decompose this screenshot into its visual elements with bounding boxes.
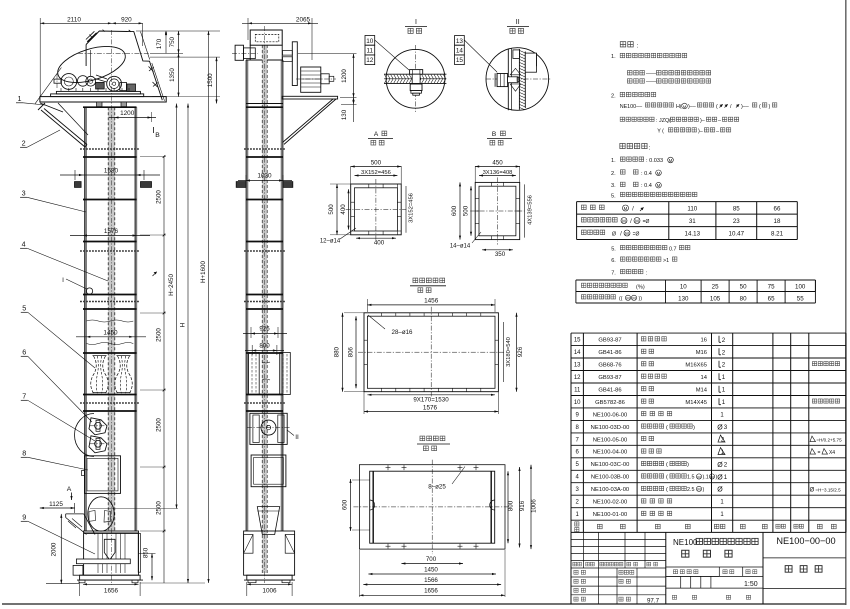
svg-text:1500: 1500 <box>207 73 214 87</box>
svg-text:GB68-76: GB68-76 <box>598 362 621 368</box>
svg-text:(: ( <box>666 425 668 431</box>
svg-text:15: 15 <box>456 57 464 64</box>
svg-text:926: 926 <box>259 326 270 333</box>
svg-text:14: 14 <box>456 48 464 55</box>
svg-text:M: M <box>624 206 628 211</box>
svg-text:GB41-86: GB41-86 <box>598 350 621 356</box>
svg-text:65: 65 <box>768 295 775 302</box>
svg-text:>1: >1 <box>663 258 669 264</box>
svg-text:)): )) <box>639 296 643 302</box>
svg-text:I: I <box>415 19 417 26</box>
svg-text:14: 14 <box>701 375 708 381</box>
svg-text:)–: )– <box>698 129 703 135</box>
svg-text:(: ( <box>716 104 718 110</box>
svg-text:12: 12 <box>574 375 581 381</box>
svg-text:16: 16 <box>701 338 707 344</box>
svg-text:H−2450: H−2450 <box>168 274 175 296</box>
svg-text:10: 10 <box>574 400 581 406</box>
svg-text:X4: X4 <box>829 450 835 456</box>
svg-text:H(: H( <box>676 104 682 110</box>
svg-text:12–ø14: 12–ø14 <box>320 239 341 245</box>
svg-text:(: ( <box>666 475 668 481</box>
svg-text:: 0.033: : 0.033 <box>646 158 663 164</box>
svg-text:800: 800 <box>259 343 270 350</box>
svg-text:M: M <box>632 296 635 301</box>
svg-text:5: 5 <box>22 304 26 313</box>
svg-text:1: 1 <box>722 387 726 394</box>
svg-text:100: 100 <box>795 284 806 291</box>
svg-text:H+1600: H+1600 <box>200 261 207 283</box>
svg-text:2110: 2110 <box>67 16 81 23</box>
svg-text:80: 80 <box>740 295 747 302</box>
svg-text:700: 700 <box>426 556 437 563</box>
svg-text:110: 110 <box>687 206 697 213</box>
svg-text:400: 400 <box>340 204 347 215</box>
svg-text:M16X65: M16X65 <box>685 362 707 368</box>
svg-text:Ø: Ø <box>717 474 723 481</box>
svg-text:50: 50 <box>740 284 747 291</box>
svg-text:14.13: 14.13 <box>685 231 701 238</box>
svg-text:14: 14 <box>574 350 581 356</box>
svg-text:1.: 1. <box>611 54 616 60</box>
svg-text:66: 66 <box>774 206 781 213</box>
svg-text:II: II <box>516 19 520 26</box>
svg-text:NE100-04-00: NE100-04-00 <box>593 450 627 456</box>
svg-text:1030: 1030 <box>257 173 272 180</box>
svg-text:10.47: 10.47 <box>729 231 745 238</box>
svg-text:4: 4 <box>22 240 26 249</box>
svg-text::: : <box>637 43 639 50</box>
svg-text:800: 800 <box>508 500 515 511</box>
svg-text:1450: 1450 <box>424 567 438 574</box>
svg-text:——: —— <box>646 71 656 77</box>
svg-text:1656: 1656 <box>104 587 119 594</box>
svg-text:10: 10 <box>680 284 687 291</box>
svg-text:13: 13 <box>456 38 464 45</box>
svg-text:NE100-03D-00: NE100-03D-00 <box>591 425 630 431</box>
svg-text:806: 806 <box>347 346 354 357</box>
svg-text:M: M <box>710 474 713 479</box>
svg-text:500: 500 <box>328 204 335 215</box>
svg-text:920: 920 <box>121 16 132 23</box>
svg-text:1: 1 <box>722 374 726 381</box>
svg-text:1: 1 <box>724 474 728 481</box>
svg-text:GB93-87: GB93-87 <box>598 338 621 344</box>
svg-text:10: 10 <box>366 38 374 45</box>
svg-text:M: M <box>697 474 700 479</box>
svg-text:M: M <box>622 219 626 224</box>
svg-text:28–ø16: 28–ø16 <box>392 329 414 336</box>
svg-text:11: 11 <box>366 48 373 55</box>
svg-text:Ø: Ø <box>612 232 617 238</box>
svg-text:(: ( <box>759 104 761 110</box>
svg-text:500: 500 <box>371 160 382 167</box>
svg-text:): ) <box>693 425 695 431</box>
svg-text:2: 2 <box>722 349 726 356</box>
svg-text:105: 105 <box>710 295 721 302</box>
svg-text:2500: 2500 <box>156 501 163 515</box>
svg-text:B: B <box>492 131 496 138</box>
svg-text:A: A <box>67 486 72 493</box>
svg-text:: 0.4: : 0.4 <box>641 171 652 177</box>
svg-text:M14: M14 <box>696 387 708 393</box>
svg-text:II: II <box>295 434 299 441</box>
svg-text:(: ( <box>666 462 668 468</box>
svg-text:130: 130 <box>341 109 348 120</box>
svg-text:1200: 1200 <box>120 110 135 117</box>
svg-text:Ø: Ø <box>717 487 723 494</box>
svg-text:3X180=540: 3X180=540 <box>506 337 512 367</box>
svg-text:2: 2 <box>724 462 728 469</box>
svg-text:170: 170 <box>156 38 163 49</box>
svg-text:2500: 2500 <box>156 418 163 432</box>
svg-text:1680: 1680 <box>104 168 119 175</box>
svg-text:): ) <box>687 462 689 468</box>
svg-text:400: 400 <box>374 240 385 247</box>
svg-text:9: 9 <box>22 513 26 522</box>
svg-text:500: 500 <box>462 205 469 216</box>
svg-text:0.7: 0.7 <box>669 247 677 253</box>
svg-text:8–ø25: 8–ø25 <box>428 484 446 491</box>
svg-text:M: M <box>625 231 629 236</box>
svg-text:600: 600 <box>342 499 349 510</box>
svg-text:M: M <box>635 219 639 224</box>
svg-text:7: 7 <box>22 392 26 401</box>
svg-text:1006: 1006 <box>262 587 277 594</box>
svg-text:NE100––: NE100–– <box>620 104 642 110</box>
svg-text:880: 880 <box>334 346 341 357</box>
svg-text:H: H <box>180 322 187 327</box>
svg-text:2065: 2065 <box>296 16 311 23</box>
svg-text:M: M <box>683 104 686 109</box>
svg-text:7.: 7. <box>611 271 616 277</box>
svg-text:23: 23 <box>733 218 740 225</box>
svg-text:1006: 1006 <box>531 499 538 513</box>
svg-text:Y (: Y ( <box>657 129 664 135</box>
svg-text:5.: 5. <box>611 193 616 199</box>
svg-text:15: 15 <box>574 338 581 344</box>
svg-text:: 0.4: : 0.4 <box>641 183 652 189</box>
svg-text:M14X45: M14X45 <box>685 400 707 406</box>
svg-text:(: ( <box>666 487 668 493</box>
svg-text:M16: M16 <box>696 350 707 356</box>
svg-text:M: M <box>697 487 700 492</box>
svg-text:M: M <box>657 183 661 188</box>
svg-text:1450: 1450 <box>103 329 118 336</box>
svg-text:850: 850 <box>143 547 150 558</box>
svg-text:1350: 1350 <box>169 68 176 82</box>
svg-text:3X136=408: 3X136=408 <box>483 170 513 176</box>
svg-text:600: 600 <box>451 205 458 216</box>
svg-text:M: M <box>657 171 661 176</box>
svg-text:NE100−00−00: NE100−00−00 <box>776 536 835 546</box>
svg-text:350: 350 <box>495 251 506 258</box>
svg-text:=H/0.2+5.75: =H/0.2+5.75 <box>816 438 842 443</box>
svg-text:3X152=456: 3X152=456 <box>408 193 414 223</box>
svg-text:=Ø: =Ø <box>633 232 640 238</box>
svg-text::: : <box>649 145 651 152</box>
svg-text:5.: 5. <box>611 247 616 253</box>
svg-text:3.: 3. <box>611 183 616 189</box>
svg-text:NE100-03B-00: NE100-03B-00 <box>591 475 629 481</box>
svg-text:A: A <box>374 131 379 138</box>
svg-text::: : <box>646 271 648 277</box>
svg-text:75: 75 <box>768 284 775 291</box>
svg-text:97.7: 97.7 <box>647 597 660 604</box>
svg-text:M: M <box>626 296 629 301</box>
svg-text:)–: )– <box>700 118 705 124</box>
svg-text:2: 2 <box>22 139 26 148</box>
svg-text:1125: 1125 <box>49 501 63 508</box>
svg-text:2: 2 <box>722 362 726 369</box>
svg-text:916: 916 <box>519 500 526 511</box>
svg-text:2000: 2000 <box>51 542 58 556</box>
svg-text:1200: 1200 <box>341 69 348 83</box>
svg-text:6.: 6. <box>611 258 616 264</box>
svg-text:25: 25 <box>712 284 719 291</box>
svg-text:9X170=1530: 9X170=1530 <box>413 397 449 404</box>
svg-text:NE100-06-00: NE100-06-00 <box>593 412 627 418</box>
svg-text:14–ø14: 14–ø14 <box>450 243 471 249</box>
svg-text:——: —— <box>646 79 656 85</box>
svg-text:((: (( <box>619 296 623 302</box>
svg-text:NE100-03C-00: NE100-03C-00 <box>591 462 630 468</box>
svg-text:M: M <box>669 158 673 163</box>
svg-text:3: 3 <box>22 189 26 198</box>
svg-text:8.21: 8.21 <box>771 231 784 238</box>
svg-text:–: – <box>716 129 719 135</box>
svg-text:3: 3 <box>724 424 728 431</box>
svg-text:I: I <box>62 277 64 284</box>
svg-text:GB93-87: GB93-87 <box>598 375 621 381</box>
svg-text:GB5782-86: GB5782-86 <box>595 400 625 406</box>
svg-text:B: B <box>155 132 160 139</box>
svg-text:2: 2 <box>722 337 726 344</box>
svg-text:NE100-01-00: NE100-01-00 <box>593 512 627 518</box>
svg-text:55: 55 <box>797 295 804 302</box>
svg-text:1: 1 <box>722 399 726 406</box>
svg-text:6: 6 <box>22 348 26 357</box>
svg-text:GB41-86: GB41-86 <box>598 387 621 393</box>
svg-text:): ) <box>703 487 705 493</box>
svg-text:18: 18 <box>774 218 781 225</box>
svg-text:750: 750 <box>169 36 176 47</box>
svg-text:)––: )–– <box>741 104 749 110</box>
svg-text:NE100: NE100 <box>673 538 698 547</box>
svg-text:=H−3.15/2.5: =H−3.15/2.5 <box>815 487 841 492</box>
svg-text:=Ø: =Ø <box>643 219 650 225</box>
svg-text:1.5: 1.5 <box>687 475 695 481</box>
svg-text:4X139=556: 4X139=556 <box>527 195 533 225</box>
svg-text:1:50: 1:50 <box>744 581 758 588</box>
svg-text:1576: 1576 <box>104 228 119 235</box>
svg-text:2.: 2. <box>611 171 616 177</box>
svg-text:130: 130 <box>678 295 689 302</box>
svg-text:1.: 1. <box>611 158 616 164</box>
svg-text:1566: 1566 <box>424 577 438 584</box>
svg-text:1656: 1656 <box>424 588 438 595</box>
svg-text:): ) <box>769 104 771 110</box>
svg-text:450: 450 <box>492 160 503 167</box>
svg-text:31: 31 <box>689 218 696 225</box>
svg-text:85: 85 <box>733 206 740 213</box>
svg-text:Ø: Ø <box>717 424 723 431</box>
svg-text:NE100-05-00: NE100-05-00 <box>593 437 627 443</box>
svg-text:NE100-02-00: NE100-02-00 <box>593 500 627 506</box>
svg-text:–: – <box>718 118 721 124</box>
svg-text:926: 926 <box>517 346 524 357</box>
svg-text:1456: 1456 <box>424 298 439 305</box>
svg-text:11: 11 <box>574 387 581 393</box>
svg-text:=: = <box>818 450 821 456</box>
svg-text:12: 12 <box>366 57 374 64</box>
svg-text:3X152=456: 3X152=456 <box>361 170 391 176</box>
svg-text:2.5: 2.5 <box>687 487 695 493</box>
svg-text:8: 8 <box>22 449 26 458</box>
svg-text:Ø: Ø <box>810 488 815 494</box>
svg-text:: JZQ(: : JZQ( <box>656 118 671 124</box>
svg-text:13: 13 <box>574 362 581 368</box>
svg-text:2500: 2500 <box>156 328 163 342</box>
svg-text:)––: )–– <box>688 104 696 110</box>
svg-text:Ø: Ø <box>717 462 723 469</box>
svg-text:1576: 1576 <box>423 404 438 411</box>
svg-text:(%): (%) <box>636 285 645 291</box>
svg-text:1: 1 <box>18 94 22 103</box>
svg-text:2500: 2500 <box>156 190 163 204</box>
svg-text:NE100-03A-00: NE100-03A-00 <box>591 487 629 493</box>
svg-text:2.: 2. <box>611 94 616 100</box>
